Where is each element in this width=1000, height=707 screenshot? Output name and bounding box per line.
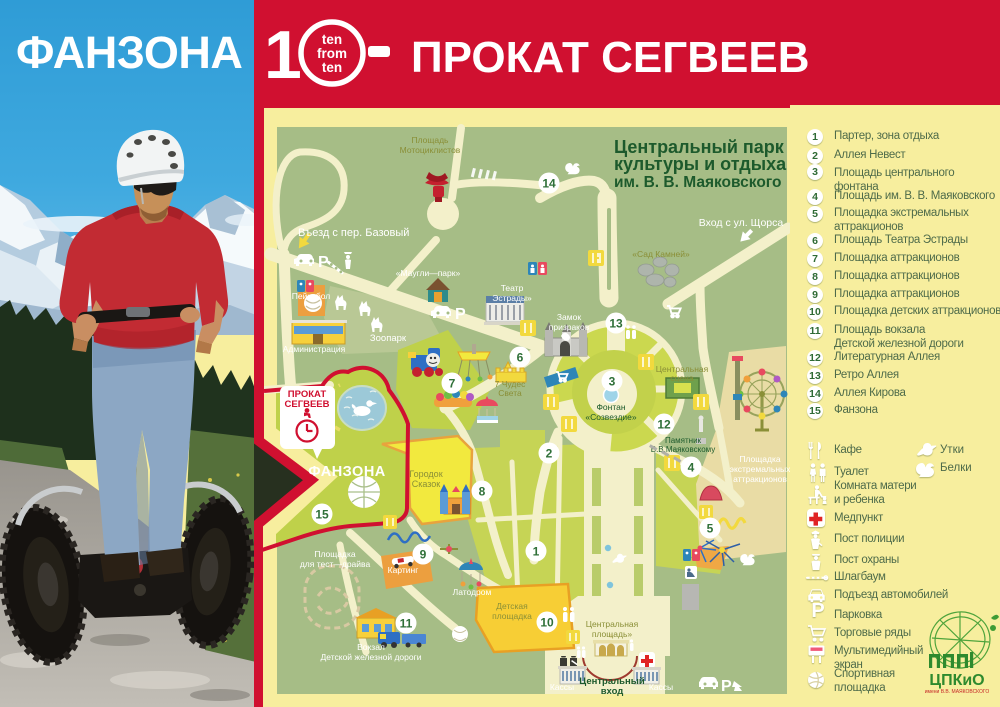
svg-text:Сказок: Сказок (412, 479, 441, 489)
svg-text:экстремальных: экстремальных (730, 464, 792, 474)
svg-text:5: 5 (707, 522, 714, 536)
svg-text:Зоопарк: Зоопарк (370, 333, 407, 344)
svg-text:Детской железной дороги: Детской железной дороги (321, 652, 422, 662)
svg-text:11: 11 (400, 617, 413, 631)
svg-text:аттракционов: аттракционов (733, 474, 787, 484)
svg-text:7: 7 (449, 377, 456, 391)
svg-text:Картинг: Картинг (388, 565, 419, 575)
svg-text:культуры и отдыха: культуры и отдыха (614, 154, 787, 174)
svg-text:призраков: призраков (549, 322, 590, 332)
svg-text:вход: вход (601, 686, 624, 697)
svg-text:«Сад Камней»: «Сад Камней» (632, 249, 690, 259)
svg-text:13: 13 (609, 317, 623, 331)
svg-text:ФАНЗОНА: ФАНЗОНА (308, 464, 386, 480)
svg-text:Вход с ул. Щорса: Вход с ул. Щорса (699, 217, 784, 229)
svg-text:В.В.Маяковскому: В.В.Маяковскому (651, 445, 715, 454)
svg-text:14: 14 (542, 177, 556, 191)
svg-text:from: from (317, 46, 347, 61)
svg-text:Въезд с пер. Базовый: Въезд с пер. Базовый (298, 227, 409, 239)
svg-text:Кассы: Кассы (550, 682, 574, 692)
svg-text:15: 15 (315, 508, 329, 522)
svg-text:им. В. В. Маяковского: им. В. В. Маяковского (614, 174, 782, 191)
svg-text:12: 12 (657, 418, 671, 432)
svg-text:Театр: Театр (501, 283, 524, 293)
svg-text:Замок: Замок (557, 312, 581, 322)
svg-text:Мотоциклистов: Мотоциклистов (400, 145, 461, 155)
svg-text:2: 2 (546, 447, 553, 461)
svg-text:Центральная: Центральная (586, 619, 639, 629)
svg-text:ten: ten (322, 32, 342, 47)
svg-text:ЦПКиО: ЦПКиО (929, 672, 984, 689)
svg-text:площадка: площадка (492, 611, 532, 621)
svg-text:Городок: Городок (409, 469, 442, 479)
svg-text:10: 10 (540, 616, 554, 630)
svg-text:P: P (455, 306, 466, 323)
svg-text:Эстрады»: Эстрады» (492, 293, 532, 303)
svg-text:Администрация: Администрация (283, 344, 346, 354)
svg-text:Света: Света (498, 388, 522, 398)
svg-text:8: 8 (479, 485, 486, 499)
svg-text:Площадка: Площадка (314, 549, 355, 559)
svg-text:«Созвездие»: «Созвездие» (585, 412, 637, 422)
svg-text:Пейнтбол: Пейнтбол (292, 291, 331, 301)
svg-text:Вокзал: Вокзал (357, 642, 385, 652)
svg-text:4: 4 (688, 461, 695, 475)
svg-text:Площадка: Площадка (739, 454, 780, 464)
svg-text:Кассы: Кассы (649, 682, 673, 692)
svg-text:6: 6 (517, 351, 524, 365)
svg-text:9: 9 (420, 548, 427, 562)
svg-text:Памятник: Памятник (665, 436, 702, 445)
svg-text:1: 1 (264, 17, 302, 93)
svg-text:P: P (721, 678, 732, 695)
svg-text:площадь»: площадь» (592, 629, 632, 639)
svg-text:Фонтан: Фонтан (596, 402, 625, 412)
svg-text:имени В.В. МАЯКОВСКОГО: имени В.В. МАЯКОВСКОГО (925, 689, 990, 695)
svg-text:Детская: Детская (496, 601, 528, 611)
svg-text:для тест—драйва: для тест—драйва (300, 559, 371, 569)
svg-text:сцена: сцена (670, 373, 693, 383)
svg-text:«Маугли—парк»: «Маугли—парк» (396, 268, 461, 278)
svg-text:1: 1 (533, 545, 540, 559)
svg-text:Латодром: Латодром (453, 587, 492, 597)
svg-text:3: 3 (609, 375, 616, 389)
svg-text:Площадь: Площадь (411, 135, 449, 145)
svg-text:ten: ten (322, 60, 342, 75)
